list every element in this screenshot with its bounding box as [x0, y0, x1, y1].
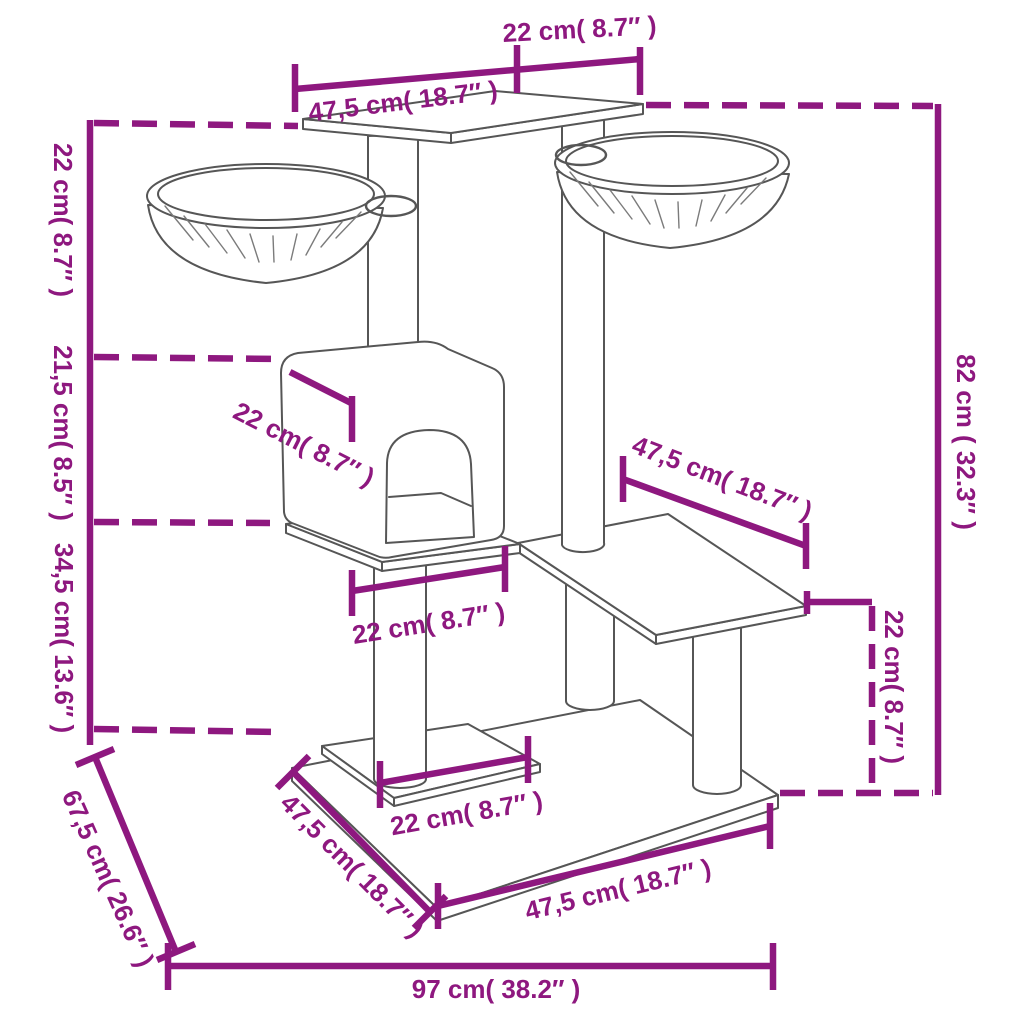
post-under-side-platform: [693, 612, 741, 794]
dim-label-total-height: 82 cm ( 32.3″ ): [951, 354, 981, 530]
dash-middle-level: [94, 522, 270, 523]
dim-label-middle-level-height: 34,5 cm( 13.6″ ): [49, 543, 79, 733]
dim-label-basket-level-height: 22 cm( 8.7″ ): [48, 143, 78, 297]
cat-house-door-arch: [386, 430, 474, 543]
scratching-post-left: [368, 134, 418, 356]
dash-base-top-level: [94, 729, 280, 732]
dimension-diagram-canvas: 22 cm( 8.7″ ) 47,5 cm( 18.7″ ) 22 cm( 8.…: [0, 0, 1024, 1024]
hanging-basket-right-rim-inner: [566, 136, 778, 186]
dim-label-side-platform-height: 22 cm( 8.7″ ): [879, 610, 909, 764]
hanging-basket-left-rim-inner: [158, 168, 374, 220]
dash-top-right-level: [646, 105, 933, 106]
dim-label-base-width: 97 cm( 38.2″ ): [412, 974, 581, 1004]
post-under-house: [374, 558, 426, 788]
dim-label-house-height: 21,5 cm( 8.5″ ): [48, 345, 78, 521]
dim-label-top-platform-depth: 22 cm( 8.7″ ): [502, 10, 657, 48]
cat-tree-dimension-diagram: 22 cm( 8.7″ ) 47,5 cm( 18.7″ ) 22 cm( 8.…: [0, 0, 1024, 1024]
dim-label-side-platform-length: 47,5 cm( 18.7″ ): [628, 430, 816, 526]
dash-basket-level: [94, 123, 298, 126]
dash-house-top-level: [94, 357, 279, 359]
